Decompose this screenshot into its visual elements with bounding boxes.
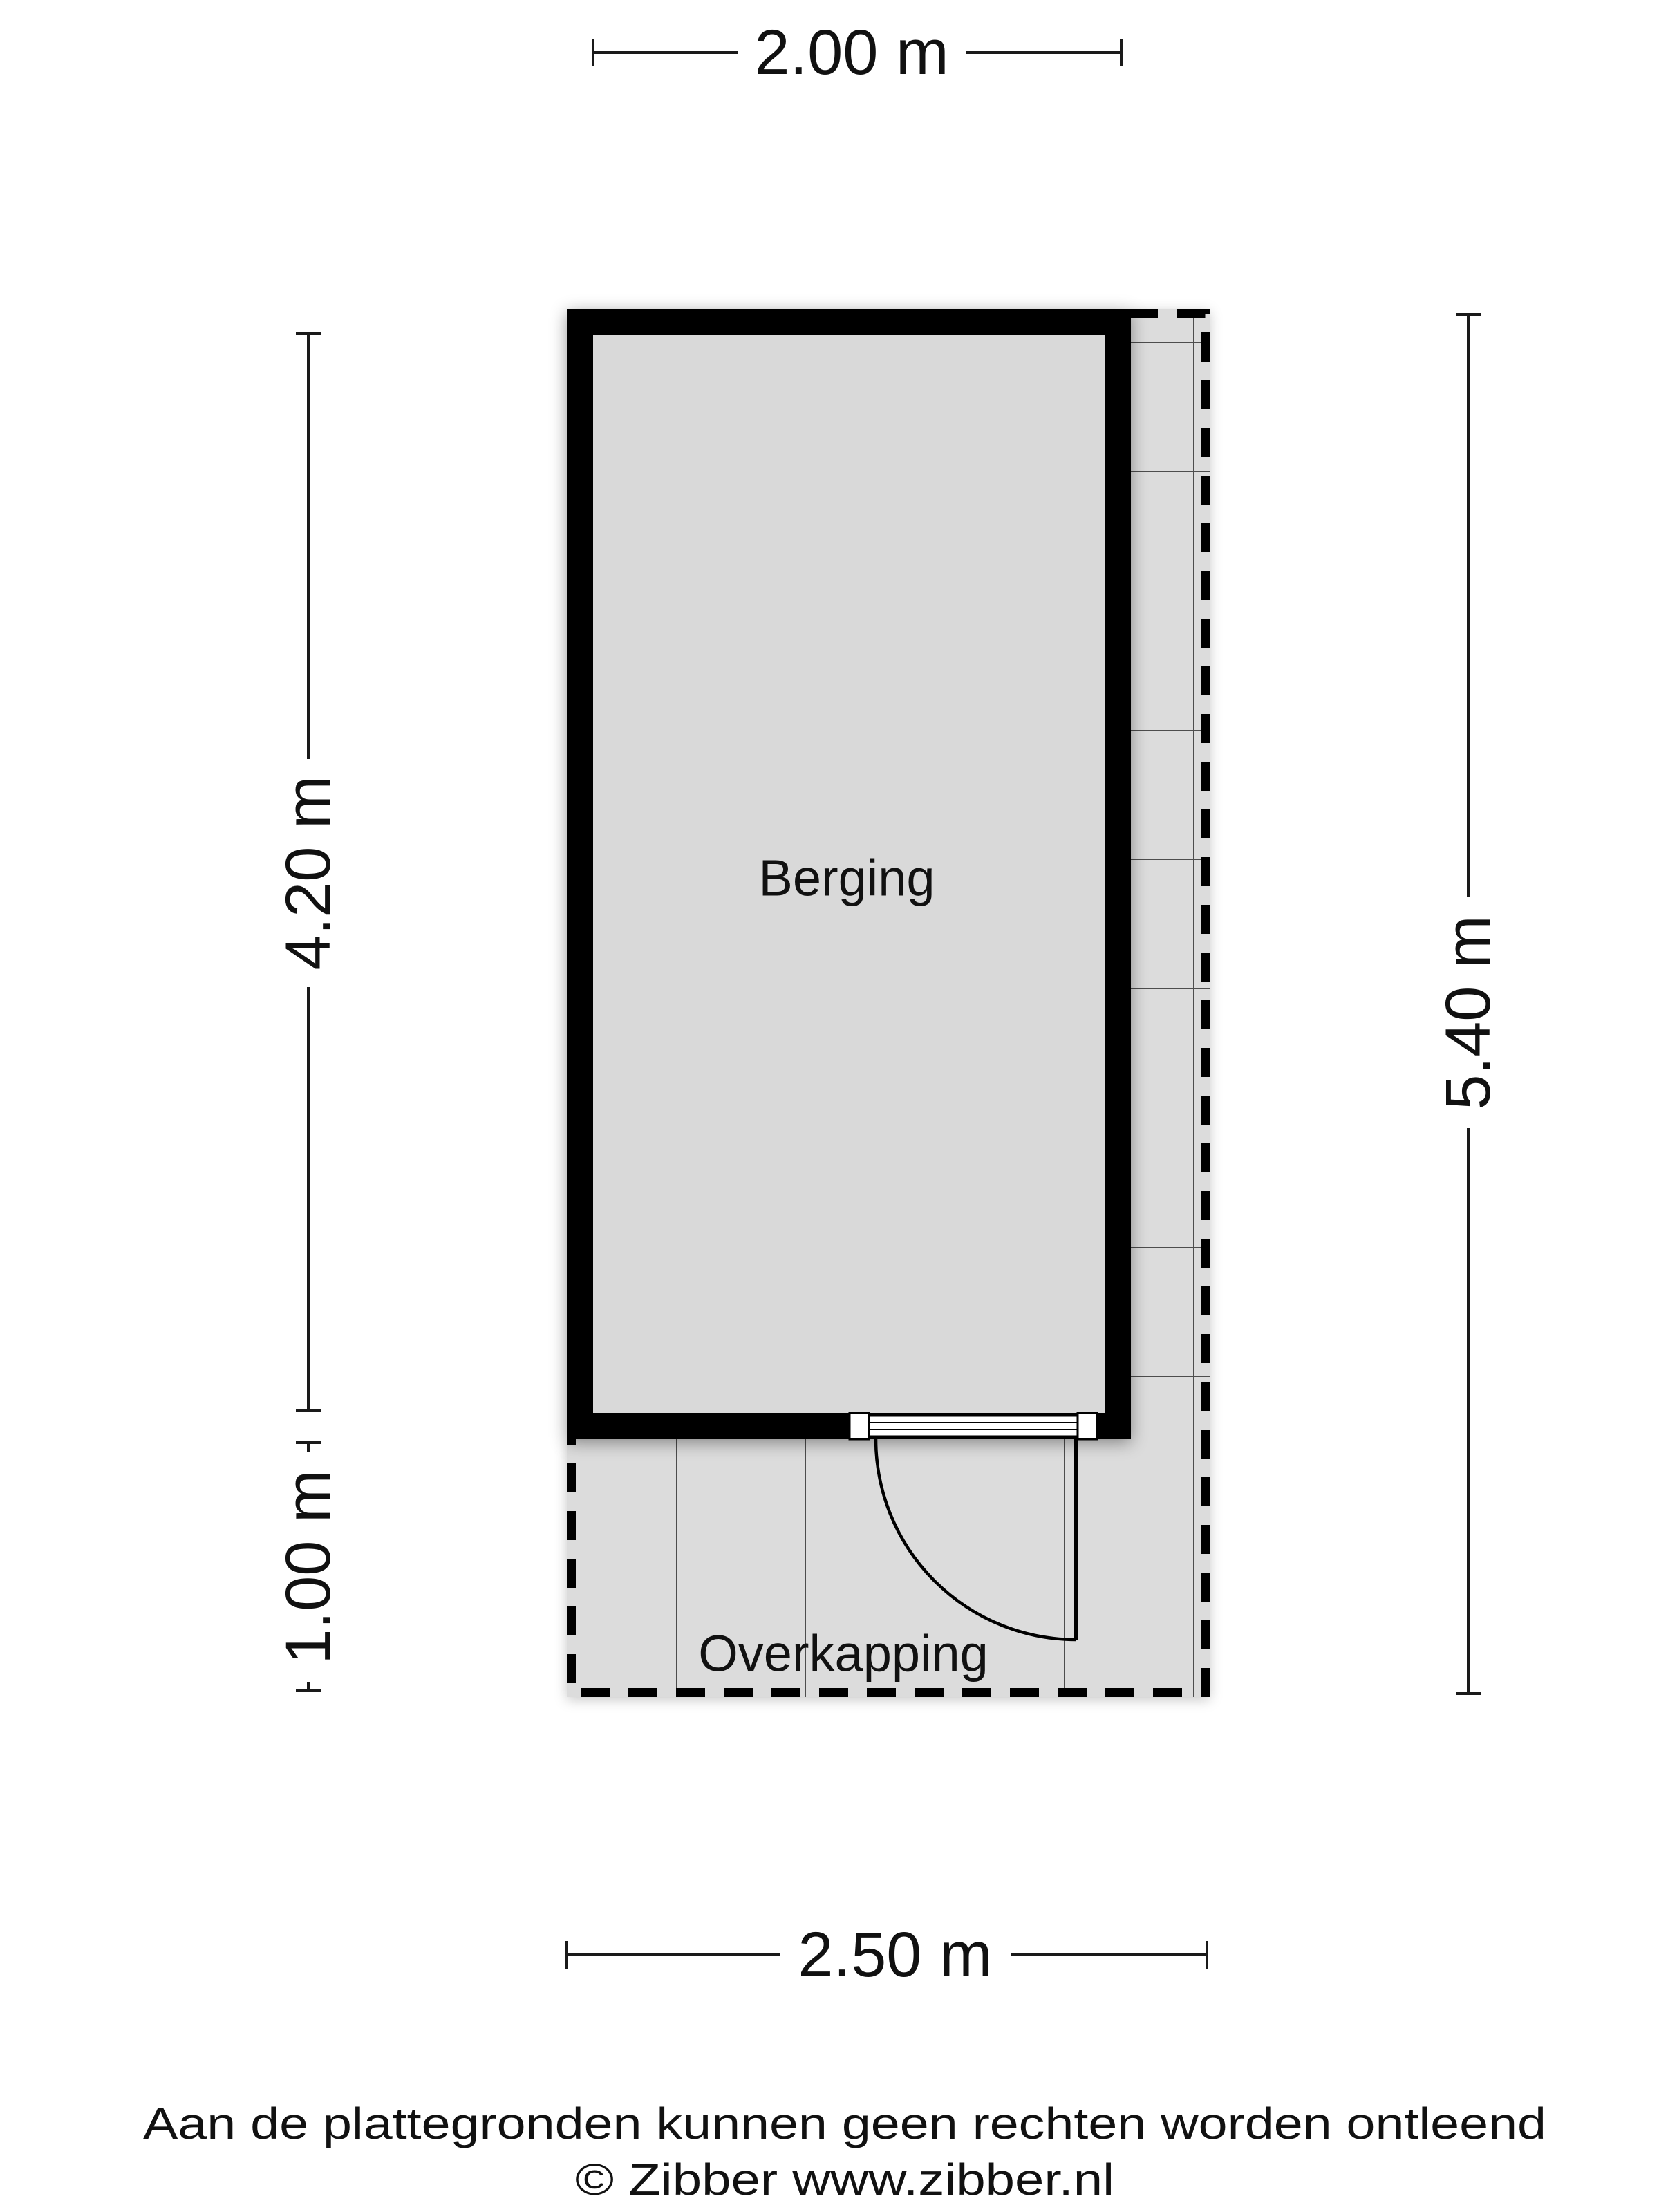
footer-disclaimer: Aan de plattegronden kunnen geen rechten… (143, 2099, 1546, 2148)
room-label-overkapping: Overkapping (698, 1625, 988, 1683)
room-label-berging: Berging (758, 850, 935, 907)
door-panel (869, 1416, 1078, 1436)
door-left-jamb (850, 1413, 869, 1439)
floorplan-page: Berging Overkapping 2.00 m 4.20 m 1.00 m… (0, 0, 1659, 2212)
right-dimension-label: 5.40 m (1433, 915, 1503, 1109)
floorplan-canvas: Berging Overkapping 2.00 m 4.20 m 1.00 m… (0, 0, 1659, 2212)
left-upper-dimension: 4.20 m (273, 333, 344, 1410)
right-dimension: 5.40 m (1433, 315, 1503, 1694)
bottom-dimension: 2.50 m (567, 1920, 1207, 1990)
left-lower-dimension: 1.00 m (273, 1443, 344, 1691)
left-lower-dimension-label: 1.00 m (273, 1470, 344, 1664)
footer-credit: © Zibber www.zibber.nl (575, 2155, 1114, 2204)
bottom-dimension-label: 2.50 m (798, 1920, 992, 1990)
top-dimension-label: 2.00 m (754, 17, 948, 88)
door-right-jamb (1078, 1413, 1097, 1439)
left-upper-dimension-label: 4.20 m (273, 776, 344, 970)
top-dimension: 2.00 m (593, 17, 1121, 88)
